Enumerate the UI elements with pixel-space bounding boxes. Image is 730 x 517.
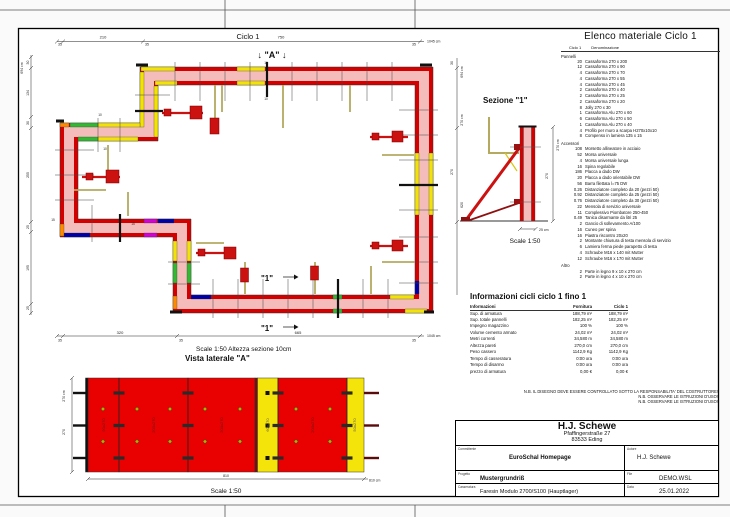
svg-text:35: 35: [412, 339, 416, 343]
nb-notes: N.B. IL DISEGNO DEVE ESSERE CONTROLLATO …: [458, 389, 718, 404]
title-block-header: H.J. Schewe Pfaffingerstraße 27 83533 Ed…: [456, 421, 718, 446]
lateral-panels: [86, 378, 365, 472]
svg-text:10: 10: [103, 147, 107, 151]
svg-text:270: 270: [62, 429, 66, 435]
info-row: prezzo di armatura0,00 €0,00 €: [470, 369, 628, 375]
committente-label: Committente: [458, 447, 476, 451]
svg-text:200x270: 200x270: [219, 417, 224, 433]
info-label: prezzo di armatura: [470, 369, 550, 375]
svg-text:25 cm: 25 cm: [539, 228, 549, 232]
progetto-label: Progetto: [458, 472, 470, 476]
svg-text:270 cm: 270 cm: [460, 114, 464, 126]
title-block-row-3: Casseratura Faresin Modulo 2700/S100 (Ha…: [456, 484, 718, 497]
file-cell: File DEMO.WSL: [624, 471, 718, 483]
material-row: 2Parte in legno 4 x 10 x 270 cm: [561, 274, 720, 280]
svg-text:35: 35: [179, 339, 183, 343]
svg-text:195: 195: [26, 265, 30, 271]
lateral-title: Vista laterale "A": [185, 354, 250, 363]
info-col-fornitura: Fornitura: [550, 304, 592, 309]
cut-marker-2: "1": [261, 324, 273, 333]
svg-text:30: 30: [450, 61, 454, 65]
info-col-ciclo: Ciclo 1: [592, 304, 628, 309]
material-row: 12Schraube M16 x 170 mit Mutter: [561, 256, 720, 262]
svg-text:270: 270: [545, 173, 549, 179]
svg-text:750: 750: [278, 35, 285, 40]
svg-text:35: 35: [58, 339, 62, 343]
data-cell: Data 25.01.2022: [624, 484, 718, 497]
cycle-info-rows: Sup. di armatura188,79 m²188,79 m²Sup. t…: [470, 311, 628, 376]
material-name: Parte in legno 4 x 10 x 270 cm: [585, 274, 642, 280]
cycle-info-header: Informazioni Fornitura Ciclo 1: [470, 304, 628, 311]
svg-text:15: 15: [51, 218, 55, 222]
material-list-header: Ciclo 1 Denominazione: [561, 45, 720, 52]
plan-title: Ciclo 1: [237, 32, 260, 41]
svg-text:210: 210: [100, 35, 107, 40]
svg-text:134: 134: [26, 90, 30, 96]
section-scale: Scale 1:50: [510, 238, 541, 245]
info-value-ciclo: 0,00 €: [592, 369, 628, 375]
material-rows-other: 2Parte in legno 9 x 10 x 270 cm2Parte in…: [561, 269, 720, 281]
lateral-scale: Scale 1:50: [211, 488, 242, 495]
progetto-cell: Progetto Mustergrundriß: [456, 471, 624, 483]
material-row: 8Compenso in lamiera 135 x 15: [561, 133, 720, 139]
material-list-title: Elenco materiale Ciclo 1: [561, 31, 720, 42]
svg-text:200x270: 200x270: [310, 417, 315, 433]
autore-cell: Autore H.J. Schewe: [624, 446, 718, 470]
svg-text:694 cm: 694 cm: [460, 66, 464, 78]
cut-marker-1: "1": [261, 274, 273, 283]
svg-text:1045 cm: 1045 cm: [427, 40, 441, 44]
svg-text:270 cm: 270 cm: [556, 139, 560, 151]
svg-text:30: 30: [26, 61, 30, 65]
svg-text:270 cm: 270 cm: [62, 390, 66, 402]
material-list-panel: Elenco materiale Ciclo 1 Ciclo 1 Denomin…: [561, 31, 720, 280]
svg-text:255: 255: [26, 172, 30, 178]
svg-text:60x270: 60x270: [265, 418, 270, 432]
material-name: Schraube M16 x 170 mit Mutter: [585, 256, 643, 262]
material-col-qty: Ciclo 1: [569, 45, 581, 50]
autore-label: Autore: [627, 447, 636, 451]
title-block-row-1: Committente EuroSchal Homepage Autore H.…: [456, 446, 718, 471]
cycle-info-table: Informazioni cicli ciclo 1 fino 1 Inform…: [470, 292, 628, 375]
svg-text:1045 cm: 1045 cm: [427, 334, 441, 338]
section-a-marker: ↓ "A" ↓: [257, 50, 286, 60]
data-label: Data: [627, 485, 634, 489]
svg-text:10: 10: [264, 97, 268, 101]
section-title: Sezione "1": [483, 96, 528, 105]
plan-scale-note: Scale 1:50 Altezza sezione 10cm: [196, 346, 291, 353]
data-value: 25.01.2022: [625, 484, 718, 495]
progetto-value: Mustergrundriß: [456, 471, 624, 482]
svg-text:25: 25: [26, 306, 30, 310]
svg-text:810: 810: [223, 474, 229, 478]
svg-text:35: 35: [412, 43, 416, 47]
file-label: File: [627, 472, 632, 476]
casseratura-value: Faresin Modulo 2700/S100 (Hauptlager): [456, 484, 624, 495]
cycle-info-title: Informazioni cicli ciclo 1 fino 1: [470, 292, 628, 301]
nb-note-line: N.B. OSSERVARE LE ISTRUZIONI D'USO!: [458, 399, 718, 404]
info-col-label: Informazioni: [470, 304, 550, 309]
svg-text:10: 10: [98, 113, 102, 117]
title-block-row-2: Progetto Mustergrundriß File DEMO.WSL: [456, 471, 718, 484]
svg-text:810 cm: 810 cm: [369, 479, 381, 483]
title-block: H.J. Schewe Pfaffingerstraße 27 83533 Ed…: [455, 420, 719, 497]
material-qty: 12: [561, 256, 582, 262]
autore-value: H.J. Schewe: [625, 446, 718, 461]
svg-text:50x270: 50x270: [352, 418, 357, 432]
drawing-sheet: Ciclo 1: [0, 0, 730, 517]
material-rows-panels: 20Cassaforma 270 x 20012Cassaforma 270 x…: [561, 59, 720, 140]
svg-text:270: 270: [450, 169, 454, 175]
committente-cell: Committente EuroSchal Homepage: [456, 446, 624, 470]
file-value: DEMO.WSL: [625, 471, 718, 482]
committente-value: EuroSchal Homepage: [456, 446, 624, 461]
svg-text:10: 10: [264, 61, 268, 65]
svg-text:200x270: 200x270: [151, 417, 156, 433]
company-city: 83533 Eding: [456, 438, 718, 444]
info-value-fornitura: 0,00 €: [550, 369, 592, 375]
svg-text:694 cm: 694 cm: [20, 62, 24, 74]
casseratura-cell: Casseratura Faresin Modulo 2700/S100 (Ha…: [456, 484, 624, 497]
svg-text:25: 25: [26, 225, 30, 229]
material-rows-accessories: 108Morsetto allineatore in acciaio52Mors…: [561, 146, 720, 261]
svg-text:15: 15: [131, 222, 135, 226]
svg-text:35: 35: [58, 43, 62, 47]
svg-text:90x270: 90x270: [101, 418, 106, 432]
material-qty: 2: [561, 274, 582, 280]
svg-text:30: 30: [26, 121, 30, 125]
svg-text:665: 665: [295, 330, 302, 335]
material-col-name: Denominazione: [591, 45, 619, 50]
svg-text:620: 620: [460, 202, 464, 208]
casseratura-label: Casseratura: [458, 485, 475, 489]
svg-text:320: 320: [117, 330, 124, 335]
svg-text:35: 35: [145, 43, 149, 47]
material-qty: 8: [561, 133, 582, 139]
material-name: Compenso in lamiera 135 x 15: [585, 133, 642, 139]
